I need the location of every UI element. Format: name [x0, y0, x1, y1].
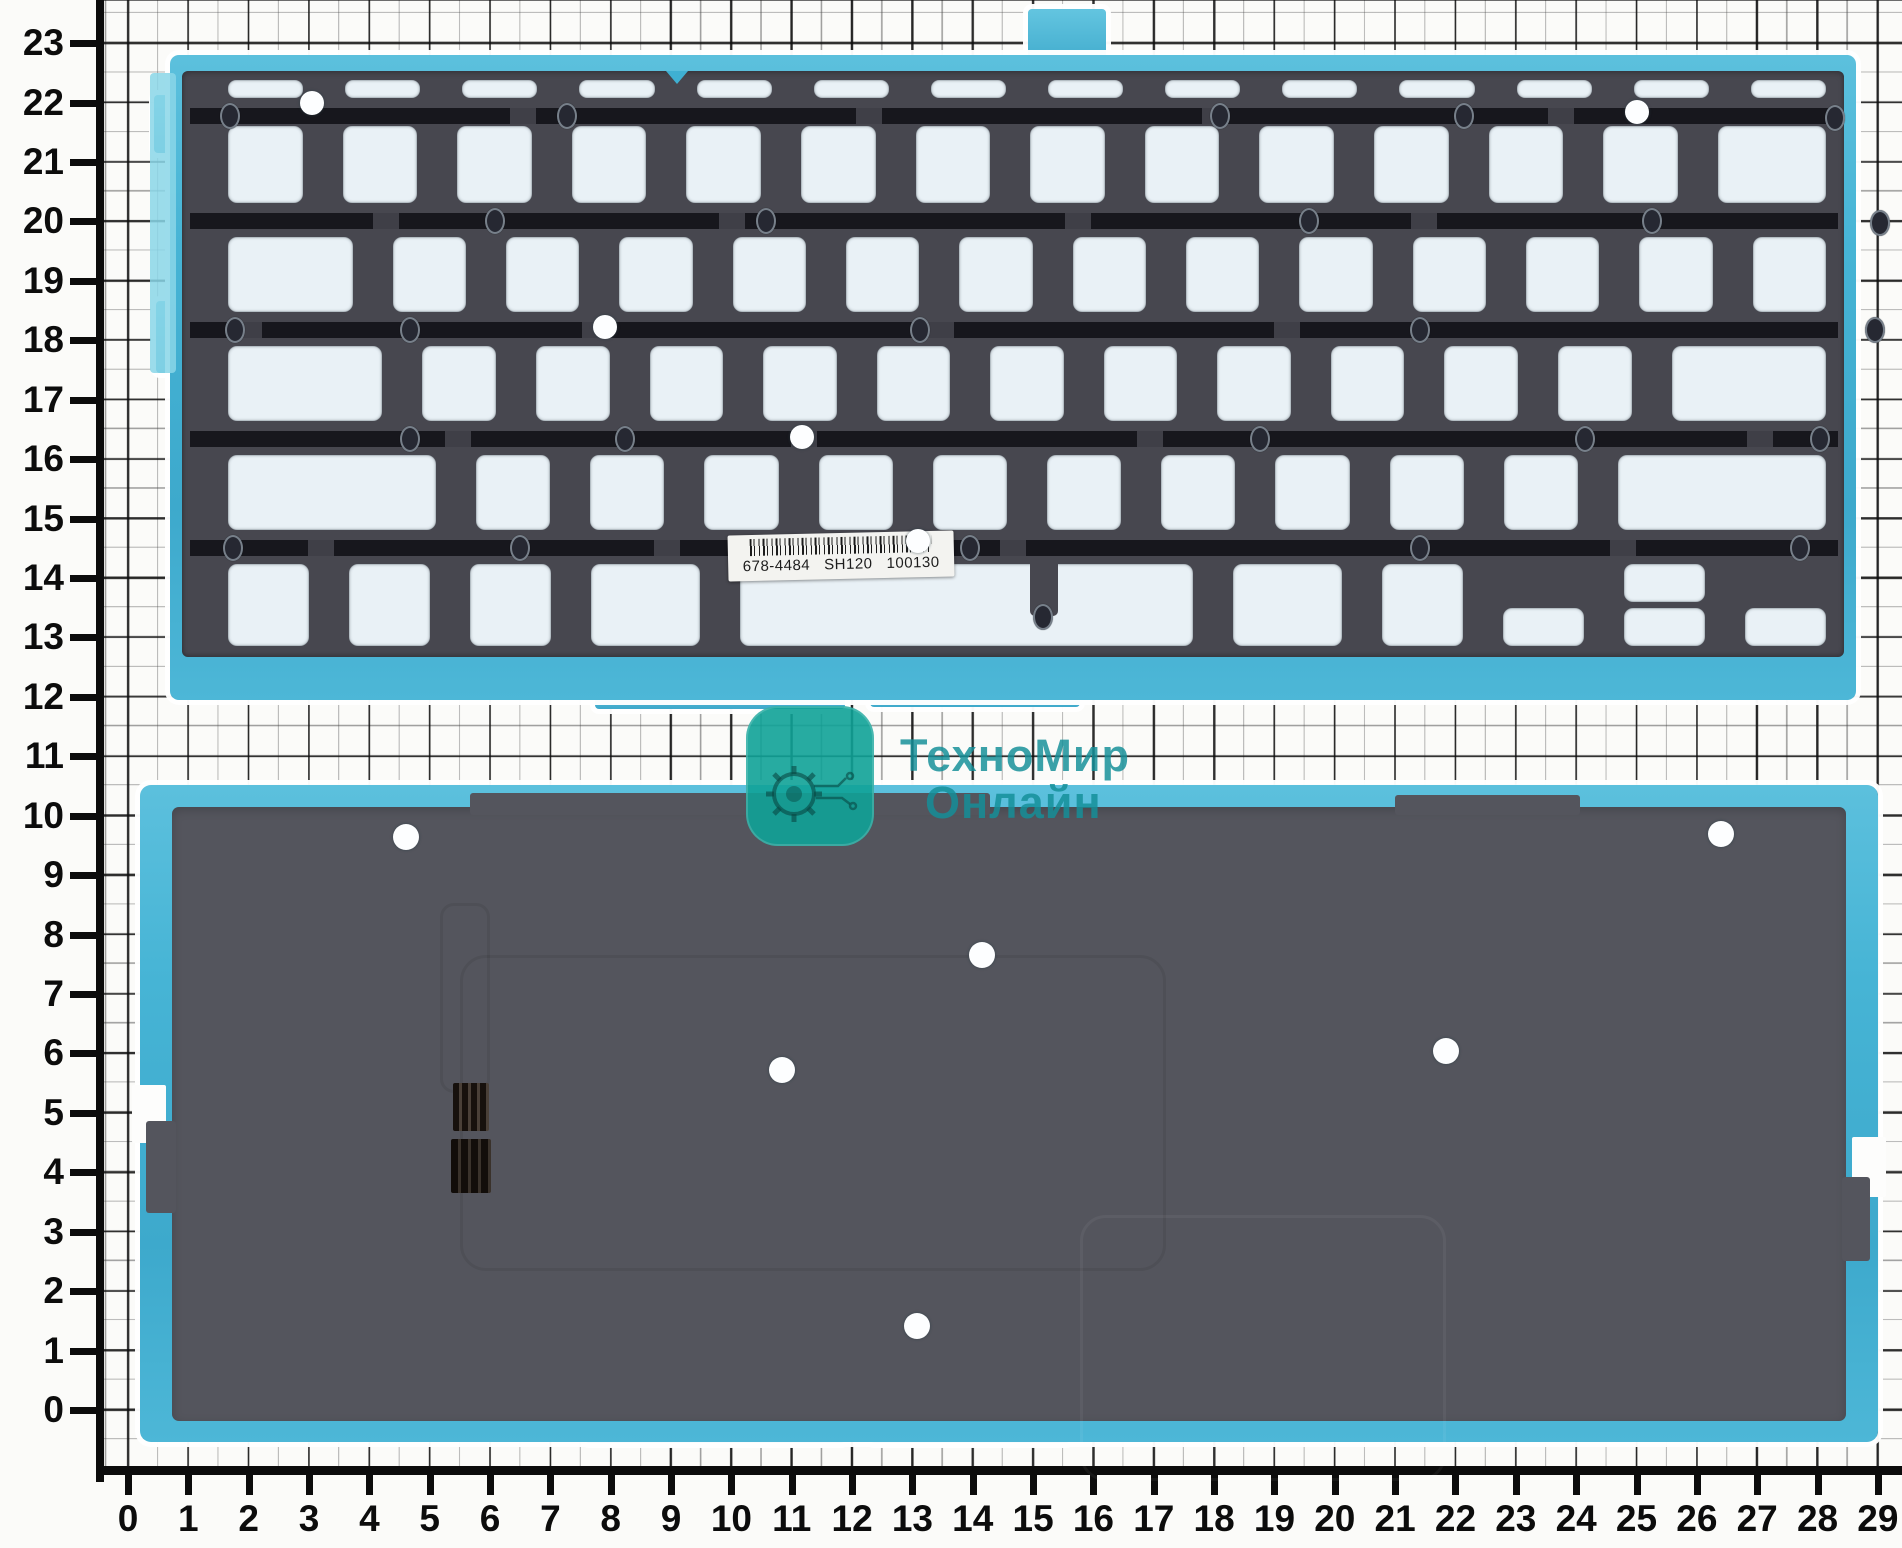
- ruler-left-number: 20: [6, 202, 64, 239]
- ruler-bottom-number: 28: [1788, 1500, 1848, 1537]
- flex-connector: [453, 1083, 491, 1193]
- key-window: [506, 237, 579, 312]
- key-window: [1526, 237, 1599, 312]
- film-side-step: [146, 1121, 176, 1213]
- ruler-left-tick: [70, 1229, 98, 1236]
- key-window: [1390, 455, 1464, 530]
- scan-photo: 23222120191817161514131211109876543210 0…: [0, 0, 1902, 1548]
- key-window: [1374, 126, 1449, 203]
- watermark-line1: ТехноМир: [900, 733, 1130, 778]
- ruler-left-tick: [70, 100, 98, 107]
- alignment-hole: [1433, 1038, 1459, 1064]
- key-window: [1104, 346, 1178, 421]
- screw-hole: [1033, 604, 1053, 630]
- key-window: [228, 237, 353, 312]
- ruler-bottom-tick: [1694, 1475, 1701, 1495]
- key-window-arrow: [1503, 608, 1584, 646]
- alignment-hole: [769, 1057, 795, 1083]
- key-window: [591, 564, 700, 646]
- key-window: [462, 80, 537, 98]
- key-window: [476, 455, 550, 530]
- key-window: [536, 346, 610, 421]
- ruler-left-number: 21: [6, 143, 64, 180]
- diffuser-strip: [190, 213, 1838, 229]
- film-top-step: [470, 793, 990, 815]
- ruler-left-number: 9: [6, 856, 64, 893]
- screw-hole: [400, 317, 420, 343]
- ruler-left-tick: [70, 634, 98, 641]
- key-window: [393, 237, 466, 312]
- ruler-left-tick: [70, 1169, 98, 1176]
- ruler-bottom-number: 22: [1425, 1500, 1485, 1537]
- key-window: [590, 455, 664, 530]
- screw-hole: [910, 317, 930, 343]
- key-window: [931, 80, 1006, 98]
- key-window: [1073, 237, 1146, 312]
- ruler-left-tick: [70, 1110, 98, 1117]
- ruler-bottom-tick: [1875, 1475, 1882, 1495]
- ruler-bottom-number: 0: [98, 1500, 158, 1537]
- ruler-bottom-number: 19: [1244, 1500, 1304, 1537]
- ruler-bottom-number: 17: [1124, 1500, 1184, 1537]
- key-window: [1672, 346, 1826, 421]
- key-window: [228, 126, 303, 203]
- key-window: [697, 80, 772, 98]
- key-window: [228, 346, 382, 421]
- ruler-bottom-number: 20: [1305, 1500, 1365, 1537]
- alignment-hole: [1625, 100, 1649, 124]
- key-window: [345, 80, 420, 98]
- alignment-hole: [790, 425, 814, 449]
- key-window: [1145, 126, 1220, 203]
- ruler-bottom-number: 18: [1184, 1500, 1244, 1537]
- store-logo: [746, 706, 874, 846]
- ruler-bottom-number: 12: [822, 1500, 882, 1537]
- ruler-bottom-number: 10: [701, 1500, 761, 1537]
- key-window: [704, 455, 778, 530]
- key-window: [1233, 564, 1342, 646]
- key-window: [470, 564, 551, 646]
- diffuser-strip: [190, 322, 1838, 338]
- key-window-arrow: [1745, 608, 1826, 646]
- screw-hole: [1870, 210, 1890, 236]
- ruler-left-tick: [70, 872, 98, 879]
- key-window: [1517, 80, 1592, 98]
- alignment-hole: [969, 942, 995, 968]
- ruler-bottom-number: 16: [1063, 1500, 1123, 1537]
- ruler-left-tick: [70, 991, 98, 998]
- ruler-left-number: 13: [6, 618, 64, 655]
- ruler-left-number: 1: [6, 1332, 64, 1369]
- ruler-bottom-tick: [789, 1475, 796, 1495]
- film-top-step: [1395, 795, 1580, 815]
- ruler-bottom-tick: [608, 1475, 615, 1495]
- key-window: [933, 455, 1007, 530]
- ruler-bottom-tick: [1634, 1475, 1641, 1495]
- screw-hole: [1454, 103, 1474, 129]
- key-window: [1413, 237, 1486, 312]
- ruler-left-tick: [70, 753, 98, 760]
- ruler-left-number: 10: [6, 797, 64, 834]
- key-window: [1275, 455, 1349, 530]
- key-window: [228, 564, 309, 646]
- key-window: [1399, 80, 1474, 98]
- key-window: [1282, 80, 1357, 98]
- key-window: [846, 237, 919, 312]
- flex-trace: [460, 955, 1166, 1271]
- ruler-bottom-number: 24: [1546, 1500, 1606, 1537]
- ruler-left-number: 16: [6, 440, 64, 477]
- screw-hole: [510, 535, 530, 561]
- key-window: [1634, 80, 1709, 98]
- key-window: [579, 80, 654, 98]
- barcode-text: 678-4484SH120100130: [728, 553, 954, 575]
- edge-notch: [666, 71, 688, 84]
- liner-sliver: [150, 73, 176, 373]
- screw-hole: [1825, 105, 1845, 131]
- connector-pins: [453, 1083, 489, 1131]
- key-window: [1161, 455, 1235, 530]
- screw-hole: [220, 103, 240, 129]
- ruler-left-tick: [70, 813, 98, 820]
- ruler-left-number: 11: [6, 737, 64, 774]
- ruler-bottom-number: 1: [158, 1500, 218, 1537]
- ruler-bottom-tick: [1573, 1475, 1580, 1495]
- ruler-left-tick: [70, 397, 98, 404]
- key-window: [1444, 346, 1518, 421]
- ruler-bottom-tick: [1754, 1475, 1761, 1495]
- key-window: [763, 346, 837, 421]
- key-window: [650, 346, 724, 421]
- ruler-left-tick: [70, 516, 98, 523]
- screw-hole: [225, 317, 245, 343]
- key-window: [1186, 237, 1259, 312]
- ruler-bottom-tick: [125, 1475, 132, 1495]
- ruler-bottom-number: 15: [1003, 1500, 1063, 1537]
- film-side-step: [1842, 1177, 1870, 1261]
- ruler-left-number: 7: [6, 975, 64, 1012]
- key-window: [228, 455, 436, 530]
- ruler-bottom-number: 13: [882, 1500, 942, 1537]
- ruler-bottom-number: 6: [460, 1500, 520, 1537]
- label-lot-code: 100130: [886, 554, 939, 572]
- key-window: [1504, 455, 1578, 530]
- ruler-left-number: 3: [6, 1213, 64, 1250]
- key-window: [801, 126, 876, 203]
- key-window: [1217, 346, 1291, 421]
- key-window: [619, 237, 692, 312]
- key-window: [343, 126, 418, 203]
- ruler-bottom-tick: [728, 1475, 735, 1495]
- ruler-left-number: 15: [6, 500, 64, 537]
- alignment-hole: [904, 1313, 930, 1339]
- ruler-bottom-tick: [1513, 1475, 1520, 1495]
- key-window: [814, 80, 889, 98]
- ruler-left-tick: [70, 456, 98, 463]
- ruler-bottom-tick: [306, 1475, 313, 1495]
- diffuser-strip: [190, 108, 1838, 124]
- key-window: [1382, 564, 1463, 646]
- ruler-left-tick: [70, 337, 98, 344]
- screw-hole: [485, 208, 505, 234]
- key-window: [422, 346, 496, 421]
- key-window: [959, 237, 1032, 312]
- screw-hole: [960, 535, 980, 561]
- ruler-bottom-tick: [970, 1475, 977, 1495]
- ruler-bottom-number: 2: [219, 1500, 279, 1537]
- alignment-hole: [393, 824, 419, 850]
- connector-body: [451, 1139, 491, 1193]
- ruler-left-tick: [70, 218, 98, 225]
- key-window: [1048, 80, 1123, 98]
- ruler-bottom-number: 23: [1486, 1500, 1546, 1537]
- screw-hole: [400, 426, 420, 452]
- ruler-bottom-tick: [1030, 1475, 1037, 1495]
- ruler-left-number: 23: [6, 24, 64, 61]
- ruler-left-tick: [70, 278, 98, 285]
- ruler-left-number: 2: [6, 1272, 64, 1309]
- ruler-bottom-number: 3: [279, 1500, 339, 1537]
- ruler-bottom-tick: [185, 1475, 192, 1495]
- alignment-hole: [300, 91, 324, 115]
- backlight-film-back: [140, 785, 1878, 1442]
- ruler-bottom-number: 11: [762, 1500, 822, 1537]
- ruler-bottom-number: 21: [1365, 1500, 1425, 1537]
- ruler-left-number: 18: [6, 321, 64, 358]
- screw-hole: [1250, 426, 1270, 452]
- barcode-icon: [750, 535, 932, 556]
- ruler-bottom-tick: [849, 1475, 856, 1495]
- ruler-bottom-tick: [1815, 1475, 1822, 1495]
- key-window: [1751, 80, 1826, 98]
- key-window: [1753, 237, 1826, 312]
- key-window: [1047, 455, 1121, 530]
- key-window: [1299, 237, 1372, 312]
- gear-icon: [746, 706, 874, 846]
- ruler-left-number: 8: [6, 916, 64, 953]
- key-window: [228, 80, 303, 98]
- ruler-left-number: 12: [6, 678, 64, 715]
- key-window: [1165, 80, 1240, 98]
- key-window: [1603, 126, 1678, 203]
- screw-hole: [1790, 535, 1810, 561]
- ruler-bottom-tick: [1452, 1475, 1459, 1495]
- screw-hole: [1410, 317, 1430, 343]
- ruler-left-number: 17: [6, 381, 64, 418]
- screw-hole: [1299, 208, 1319, 234]
- screw-hole: [615, 426, 635, 452]
- ruler-left-tick: [70, 1348, 98, 1355]
- ruler-left-number: 5: [6, 1094, 64, 1131]
- diffuser-strip: [190, 540, 1838, 556]
- key-window: [1639, 237, 1712, 312]
- label-part-number: 678-4484: [743, 557, 811, 576]
- ruler-bottom-tick: [909, 1475, 916, 1495]
- key-window: [1331, 346, 1405, 421]
- alignment-hole: [593, 315, 617, 339]
- key-window: [686, 126, 761, 203]
- ruler-bottom-number: 4: [339, 1500, 399, 1537]
- key-window-arrow-up: [1624, 564, 1705, 602]
- key-window: [1259, 126, 1334, 203]
- ruler-bottom-number: 27: [1727, 1500, 1787, 1537]
- ruler-bottom-number: 8: [581, 1500, 641, 1537]
- ruler-bottom-tick: [547, 1475, 554, 1495]
- key-window: [1618, 455, 1826, 530]
- backlight-film-front: 678-4484SH120100130: [170, 55, 1856, 700]
- ruler-left-tick: [70, 159, 98, 166]
- ruler-left-number: 6: [6, 1034, 64, 1071]
- label-model-code: SH120: [824, 555, 873, 573]
- ruler-bottom-tick: [427, 1475, 434, 1495]
- ruler-bottom-number: 14: [943, 1500, 1003, 1537]
- ruler-left-tick: [70, 1050, 98, 1057]
- ruler-left-number: 4: [6, 1153, 64, 1190]
- ruler-left-tick: [70, 40, 98, 47]
- key-window: [1718, 126, 1826, 203]
- screw-hole: [557, 103, 577, 129]
- key-window: [457, 126, 532, 203]
- ruler-bottom-number: 25: [1607, 1500, 1667, 1537]
- ruler-bottom-number: 9: [641, 1500, 701, 1537]
- ruler-bottom-number: 7: [520, 1500, 580, 1537]
- ruler-left-number: 0: [6, 1391, 64, 1428]
- ruler-left-number: 14: [6, 559, 64, 596]
- key-window: [1030, 126, 1105, 203]
- ruler-bottom-number: 5: [400, 1500, 460, 1537]
- key-window: [916, 126, 991, 203]
- ruler-left-tick: [70, 575, 98, 582]
- screw-hole: [1865, 317, 1885, 343]
- screw-hole: [1575, 426, 1595, 452]
- ruler-bottom-number: 26: [1667, 1500, 1727, 1537]
- key-window: [349, 564, 430, 646]
- ruler-bottom-tick: [668, 1475, 675, 1495]
- ruler-bottom-line: [96, 1466, 1902, 1475]
- ruler-left-tick: [70, 1407, 98, 1414]
- ruler-bottom-tick: [246, 1475, 253, 1495]
- screw-hole: [756, 208, 776, 234]
- screw-hole: [1410, 535, 1430, 561]
- screw-hole: [1210, 103, 1230, 129]
- flex-trace: [440, 903, 490, 1093]
- alignment-hole: [1708, 821, 1734, 847]
- key-window: [572, 126, 647, 203]
- key-window: [1558, 346, 1632, 421]
- ruler-bottom-number: 29: [1848, 1500, 1902, 1537]
- ruler-bottom-tick: [366, 1475, 373, 1495]
- key-window-arrow-down: [1624, 608, 1705, 646]
- watermark-line2: Онлайн: [925, 780, 1102, 825]
- key-window: [1489, 126, 1564, 203]
- screw-hole: [1642, 208, 1662, 234]
- screw-hole: [223, 535, 243, 561]
- key-window: [990, 346, 1064, 421]
- ruler-bottom-tick: [487, 1475, 494, 1495]
- ruler-left-number: 22: [6, 84, 64, 121]
- key-window: [819, 455, 893, 530]
- ruler-left-tick: [70, 694, 98, 701]
- ruler-left-tick: [70, 932, 98, 939]
- ruler-left-tick: [70, 1288, 98, 1295]
- ruler-left-number: 19: [6, 262, 64, 299]
- alignment-hole: [906, 529, 930, 553]
- key-window: [733, 237, 806, 312]
- screw-hole: [1810, 426, 1830, 452]
- flex-trace: [1080, 1215, 1446, 1481]
- key-window: [877, 346, 951, 421]
